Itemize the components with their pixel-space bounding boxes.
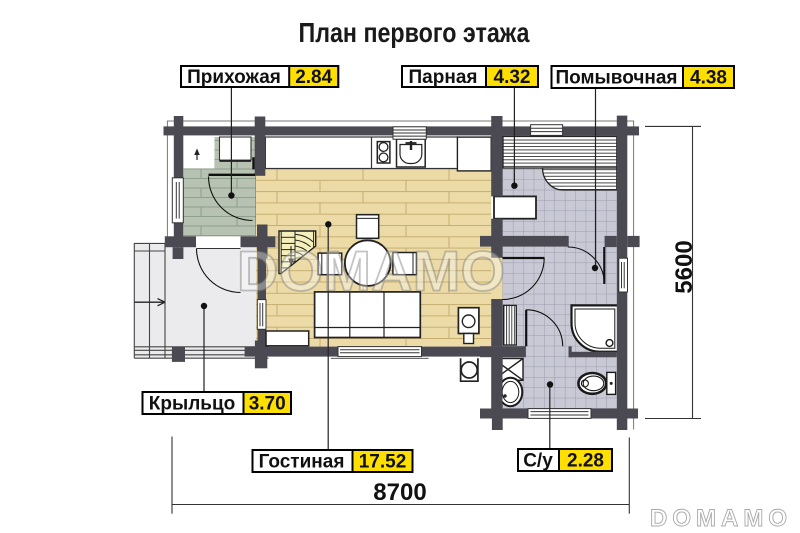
svg-text:Крыльцо: Крыльцо bbox=[149, 394, 235, 415]
svg-text:С/у: С/у bbox=[523, 451, 553, 472]
svg-text:4.32: 4.32 bbox=[494, 67, 531, 88]
svg-text:8700: 8700 bbox=[373, 479, 426, 506]
svg-text:17.52: 17.52 bbox=[359, 452, 407, 473]
svg-text:2.84: 2.84 bbox=[295, 67, 332, 88]
svg-text:План первого этажа: План первого этажа bbox=[299, 16, 530, 48]
svg-text:DOMAMO: DOMAMO bbox=[237, 240, 505, 304]
svg-text:3.70: 3.70 bbox=[249, 394, 286, 415]
svg-text:Гостиная: Гостиная bbox=[259, 452, 345, 473]
svg-text:2.28: 2.28 bbox=[567, 451, 604, 472]
svg-text:Парная: Парная bbox=[409, 67, 478, 88]
svg-text:Прихожая: Прихожая bbox=[187, 67, 281, 88]
svg-text:5600: 5600 bbox=[671, 240, 698, 293]
svg-text:Помывочная: Помывочная bbox=[555, 68, 677, 89]
svg-text:4.38: 4.38 bbox=[690, 68, 727, 89]
